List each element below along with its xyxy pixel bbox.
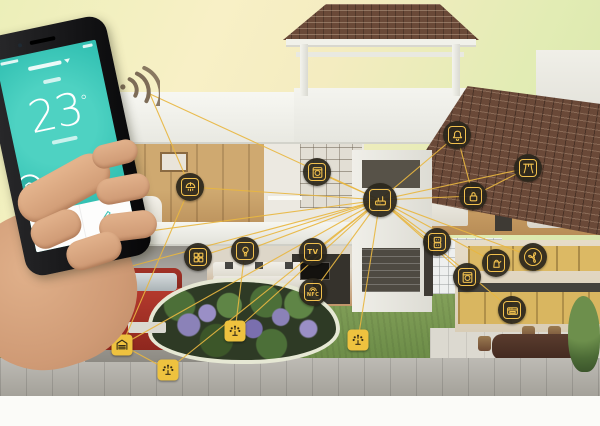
smart-kettle-icon[interactable] — [482, 249, 510, 277]
nfc-sensor-icon[interactable]: NFC — [299, 278, 327, 306]
wall-socket-icon[interactable] — [423, 228, 451, 256]
temperature-label-bar — [43, 77, 61, 84]
smart-tv-icon[interactable]: TV — [299, 238, 327, 266]
chevron-down-icon — [63, 58, 70, 63]
washing-machine-icon[interactable] — [453, 263, 481, 291]
temperature-display: 23° — [2, 68, 115, 152]
switch-panel-icon[interactable] — [184, 243, 212, 271]
app-title-text-bar — [27, 60, 61, 71]
smart-curtain-icon[interactable] — [514, 154, 542, 182]
smart-home-scene: TVNFC 23° — [0, 0, 600, 426]
temperature-value: 23° — [23, 80, 93, 140]
study-appliance-icon[interactable] — [303, 158, 331, 186]
garden-irrigation-icon[interactable] — [225, 321, 246, 342]
bedroom-ceiling-light-icon[interactable] — [176, 173, 204, 201]
light-bulb-icon[interactable] — [231, 237, 259, 265]
garden-sprinkler-right-icon[interactable] — [348, 330, 369, 351]
status-right-bar — [82, 44, 92, 49]
smart-oven-icon[interactable] — [498, 296, 526, 324]
phone-camera-dot — [18, 43, 23, 48]
garden-sprinkler-left-icon[interactable] — [158, 360, 179, 381]
exhaust-fan-icon[interactable] — [519, 243, 547, 271]
smart-hub-icon[interactable] — [363, 183, 397, 217]
alarm-bell-icon[interactable] — [443, 121, 471, 149]
phone-speaker — [29, 36, 55, 45]
door-lock-icon[interactable] — [459, 182, 487, 210]
